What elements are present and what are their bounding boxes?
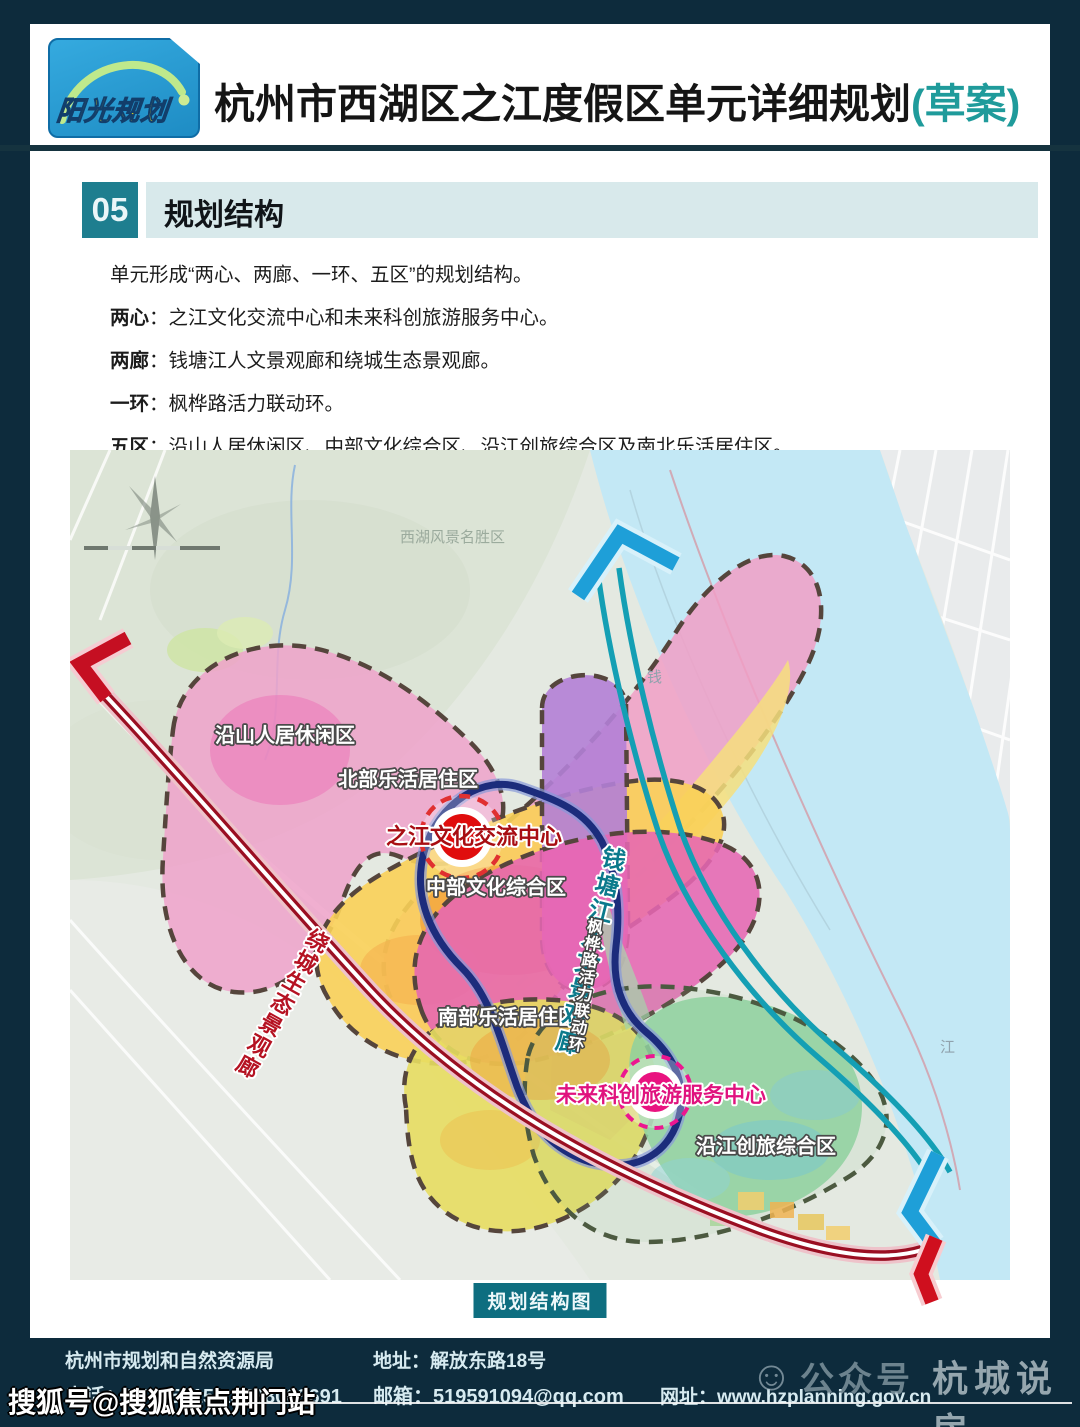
page-title-main: 杭州市西湖区之江度假区单元详细规划 bbox=[214, 81, 911, 127]
footer-org: 杭州市规划和自然资源局 bbox=[65, 1346, 274, 1373]
zone-label-beibu: 北部乐活居住区 bbox=[338, 767, 478, 791]
wechat-smiley-icon: ☺ bbox=[750, 1352, 793, 1400]
intro-term: 两心 bbox=[110, 307, 149, 329]
sunshine-planning-logo: 阳光规划 bbox=[48, 38, 200, 138]
intro-term: 一环 bbox=[110, 393, 149, 415]
river-label-jiang: 江 bbox=[940, 1039, 955, 1056]
scale-bar bbox=[84, 546, 220, 550]
zone-label-yanjiang: 沿江创旅综合区 bbox=[696, 1134, 836, 1158]
intro-line-twocenters: 两心：之江文化交流中心和未来科创旅游服务中心。 bbox=[110, 301, 990, 330]
intro-line-onering: 一环：枫桦路活力联动环。 bbox=[110, 387, 990, 416]
center-label-zhijiang: 之江文化交流中心 bbox=[386, 824, 562, 849]
watermark-sohu: 搜狐号@搜狐焦点荆门站 bbox=[8, 1381, 315, 1421]
intro-paragraph: 单元形成“两心、两廊、一环、五区”的规划结构。 两心：之江文化交流中心和未来科创… bbox=[110, 258, 990, 473]
footer-address: 地址：解放东路18号 bbox=[373, 1346, 546, 1373]
zone-label-zhongbu: 中部文化综合区 bbox=[426, 875, 566, 899]
center-label-weilai: 未来科创旅游服务中心 bbox=[556, 1083, 766, 1107]
planning-map: 西湖风景名胜区 钱 江 沿山人居休闲区 北部乐活居住区 中部文化综合区 南部乐活… bbox=[70, 450, 1010, 1310]
header-divider bbox=[0, 145, 1080, 151]
page-title-suffix: (草案) bbox=[911, 81, 1020, 127]
logo-text: 阳光规划 bbox=[55, 89, 171, 128]
section-number: 05 bbox=[82, 182, 138, 238]
river-label-qian: 钱 bbox=[647, 669, 662, 686]
watermark-underline bbox=[248, 1402, 1072, 1404]
intro-line-twocorridors: 两廊：钱塘江人文景观廊和绕城生态景观廊。 bbox=[110, 344, 990, 373]
watermark-account-name: 杭城说房 bbox=[932, 1350, 1080, 1427]
scenic-area-label: 西湖风景名胜区 bbox=[400, 529, 505, 546]
footer-email: 邮箱：519591094@qq.com bbox=[373, 1380, 624, 1409]
section-title: 规划结构 bbox=[164, 190, 284, 234]
intro-desc: ：枫桦路活力联动环。 bbox=[149, 393, 344, 415]
page-title: 杭州市西湖区之江度假区单元详细规划(草案) bbox=[214, 70, 1020, 130]
intro-term: 两廊 bbox=[110, 350, 149, 372]
poster-page: 阳光规划 杭州市西湖区之江度假区单元详细规划(草案) 05 规划结构 单元形成“… bbox=[0, 0, 1080, 1427]
intro-desc: ：钱塘江人文景观廊和绕城生态景观廊。 bbox=[149, 350, 500, 372]
intro-desc: ：之江文化交流中心和未来科创旅游服务中心。 bbox=[149, 307, 559, 329]
zone-label-yanshan: 沿山人居休闲区 bbox=[215, 723, 355, 747]
intro-line-summary: 单元形成“两心、两廊、一环、五区”的规划结构。 bbox=[110, 258, 990, 287]
watermark-account-type: 公众号 bbox=[800, 1352, 914, 1401]
